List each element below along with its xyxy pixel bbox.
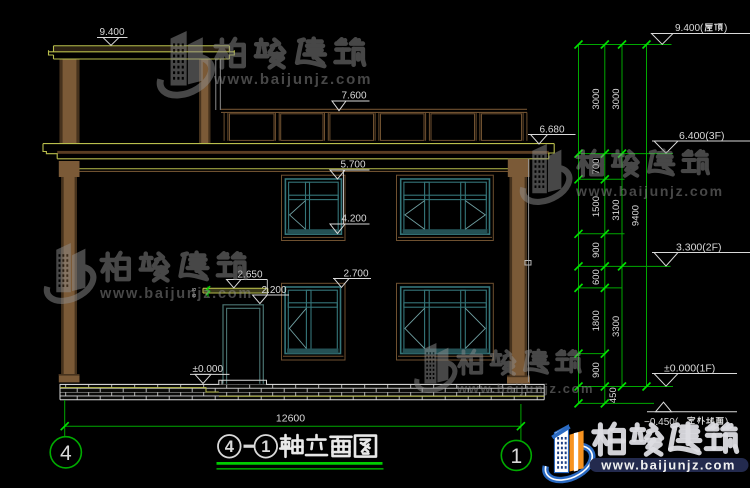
svg-text:±0.000: ±0.000 <box>193 364 224 375</box>
svg-text:4: 4 <box>225 438 235 456</box>
svg-text:900: 900 <box>591 242 602 258</box>
svg-text:1: 1 <box>261 438 270 456</box>
svg-text:9.400(: 9.400( <box>675 23 704 34</box>
svg-text:3100: 3100 <box>611 199 622 220</box>
svg-text:900: 900 <box>591 362 602 378</box>
svg-text:4: 4 <box>60 442 72 465</box>
svg-text:www.baijunjz.com: www.baijunjz.com <box>99 286 253 302</box>
svg-text:9400: 9400 <box>630 205 641 226</box>
svg-text:6.400(3F): 6.400(3F) <box>679 130 725 142</box>
svg-text:5.700: 5.700 <box>341 160 366 171</box>
svg-text:450: 450 <box>608 387 619 403</box>
svg-text:2.700: 2.700 <box>344 268 369 279</box>
svg-text:±0.000(1F): ±0.000(1F) <box>664 362 715 374</box>
svg-text:1500: 1500 <box>591 196 602 217</box>
svg-text:3000: 3000 <box>611 88 622 109</box>
svg-text:www.baijunjz.com: www.baijunjz.com <box>600 457 736 472</box>
svg-text:www.baijunjz.com: www.baijunjz.com <box>575 183 724 199</box>
svg-text:7.600: 7.600 <box>342 91 367 102</box>
svg-text:3.300(2F): 3.300(2F) <box>676 241 722 253</box>
svg-text:600: 600 <box>591 269 602 285</box>
svg-text:www.baijunjz.com: www.baijunjz.com <box>213 71 372 88</box>
svg-text:6.680: 6.680 <box>540 124 565 135</box>
svg-text:3300: 3300 <box>611 316 622 337</box>
svg-text:1: 1 <box>510 445 522 468</box>
svg-text:2.200: 2.200 <box>262 285 287 296</box>
svg-text:): ) <box>724 23 727 34</box>
svg-text:1800: 1800 <box>591 310 602 331</box>
svg-text:9.400: 9.400 <box>100 27 125 38</box>
svg-text:www.baijunjz.com: www.baijunjz.com <box>456 381 594 396</box>
svg-text:4.200: 4.200 <box>342 214 367 225</box>
svg-text:12600: 12600 <box>276 413 305 425</box>
svg-text:3000: 3000 <box>591 88 602 109</box>
